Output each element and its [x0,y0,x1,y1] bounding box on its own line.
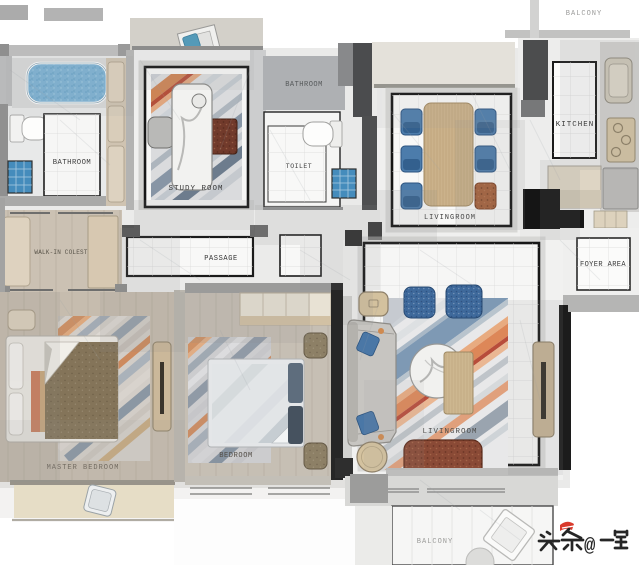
svg-text:@: @ [584,535,596,557]
svg-text:BALCONY: BALCONY [417,538,453,546]
svg-text:WALK-IN COLEST: WALK-IN COLEST [34,249,87,256]
svg-text:BEDROOM: BEDROOM [219,452,253,460]
svg-text:BATHROOM: BATHROOM [285,81,323,89]
svg-text:BALCONY: BALCONY [566,10,602,18]
svg-text:BATHROOM: BATHROOM [53,159,92,167]
svg-text:PASSAGE: PASSAGE [204,255,238,263]
svg-text:STUDY ROOM: STUDY ROOM [168,185,223,193]
svg-text:FOYER AREA: FOYER AREA [580,261,626,269]
svg-text:LIVINGROOM: LIVINGROOM [422,428,477,436]
